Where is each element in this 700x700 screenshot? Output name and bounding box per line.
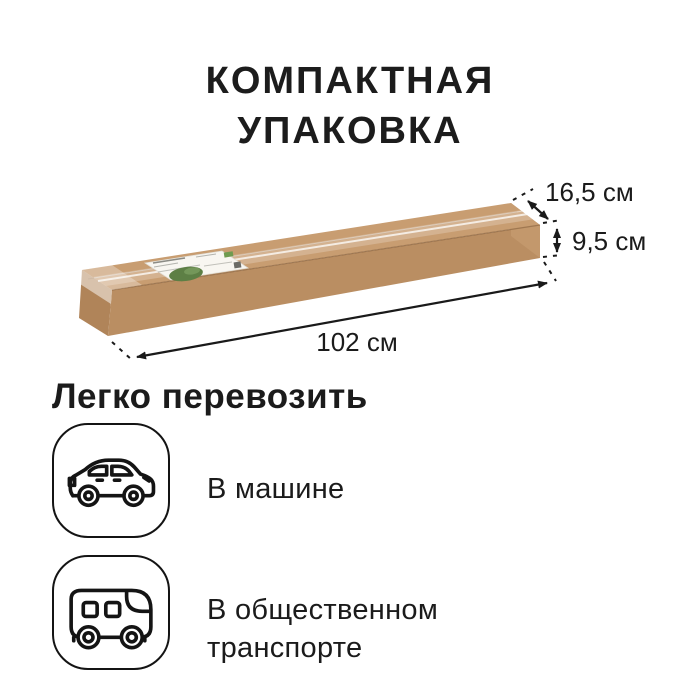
bus-item-label: В общественном транспорте [207,591,438,667]
bus-card [52,555,170,670]
car-card [52,423,170,538]
extension-line-depth-back [513,189,533,200]
extension-line-length-right [544,262,556,281]
label-barcode [234,261,242,268]
depth-label: 16,5 см [545,177,634,207]
extension-line-length-left [112,342,132,360]
transport-heading: Легко перевозить [52,377,368,417]
bus-item-label-line2: транспорте [207,629,438,667]
length-label: 102 см [316,327,397,357]
bus-icon [59,561,163,665]
bus-item-label-line1: В общественном [207,591,438,629]
height-label: 9,5 см [572,226,646,256]
extension-line-depth-front [543,220,561,223]
car-item-label: В машине [207,470,344,508]
car-icon [59,429,163,533]
extension-line-height-bottom [543,255,561,257]
